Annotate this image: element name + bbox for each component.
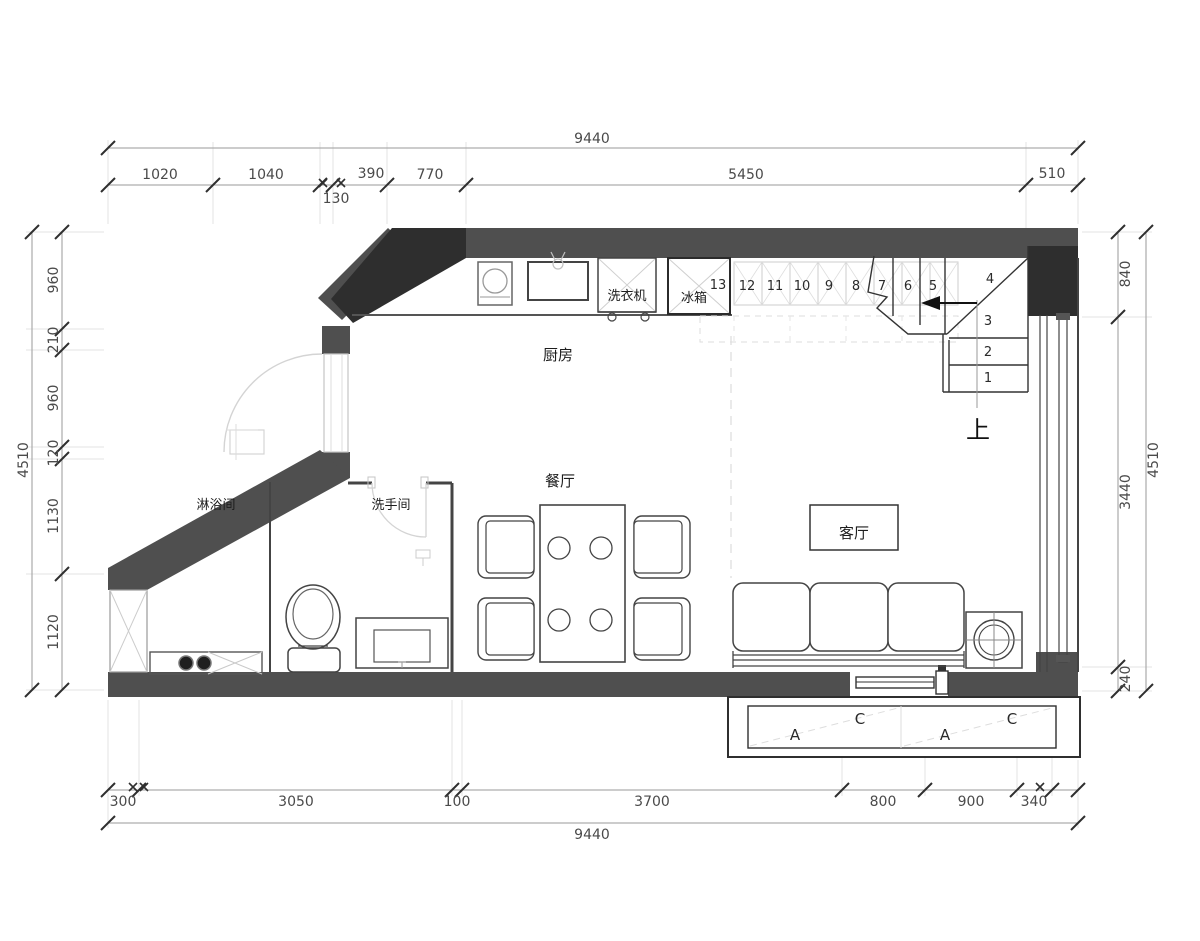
step-number: 6 [904,279,912,294]
dim-label: 900 [958,794,985,810]
chair [478,516,534,578]
pillar [936,671,948,694]
dim-label: 9440 [574,827,610,843]
dim-label: 510 [1039,166,1066,182]
dining-table [540,505,625,662]
step-number: 4 [986,272,994,287]
dim-label: 9440 [574,131,610,147]
room-label-dining: 餐厅 [545,472,575,490]
chair [634,516,690,578]
step-number: 13 [710,278,727,293]
entry-fixture [230,430,264,454]
toilet [286,585,340,672]
dim-top: 9440 1020 1040 130 390 770 5450 510 [142,131,1065,207]
sofa-base-lines [733,651,964,668]
chair [478,598,534,660]
room-label-shower: 淋浴间 [196,498,235,513]
dim-right: 840 3440 240 4510 [1118,261,1162,693]
appliance-label-washer: 洗衣机 [607,288,646,304]
sofa [733,583,964,668]
window-mark: C [1007,710,1017,728]
kitchen-sink [528,252,588,300]
dim-label: 1120 [46,614,62,650]
living-label-box: 客厅 [810,505,898,550]
window-mark: C [855,710,865,728]
balcony-window: A C A C [728,697,1080,757]
room-label-washroom: 洗手间 [371,498,410,513]
vanity [356,618,448,668]
shower-control-icon [179,656,193,670]
shower-room [110,590,262,674]
dim-label: 960 [46,267,62,294]
dim-label: 240 [1118,666,1134,693]
room-label-kitchen: 厨房 [543,346,573,364]
dim-label: 1020 [142,167,178,183]
dim-label: 800 [870,794,897,810]
floor-plan: 9440 1020 1040 130 390 770 5450 510 4510… [0,0,1200,941]
dim-label: 3440 [1118,474,1134,510]
dim-label: 770 [417,167,444,183]
dim-label: 1040 [248,167,284,183]
dim-label: 840 [1118,261,1134,288]
room-label-living: 客厅 [839,524,869,542]
step-number: 5 [929,279,937,294]
faucet-icon [553,259,563,269]
stair-up-label: 上 [966,416,990,444]
cooktop [478,262,512,305]
appliance-label-fridge: 冰箱 [681,290,707,306]
dim-label: 130 [323,191,350,207]
dim-left: 4510 960 210 960 120 1130 1120 [16,267,62,650]
entry-door [224,354,348,460]
window-mark: A [940,726,951,744]
washroom-faucet-icon [416,550,430,566]
side-table [966,612,1022,668]
stairs [868,246,1028,408]
step-number: 2 [984,345,992,360]
dim-label: 390 [358,166,385,182]
dim-label: 960 [46,385,62,412]
dim-label: 5450 [728,167,764,183]
stair-step-numbers: 13 12 11 10 9 8 7 6 5 4 3 2 1 上 [710,272,994,444]
chair [634,598,690,660]
step-number: 1 [984,371,992,386]
step-number: 9 [825,279,833,294]
dim-label: 340 [1021,794,1048,810]
step-number: 11 [767,279,784,294]
shower-control-icon [197,656,211,670]
dim-label: 3050 [278,794,314,810]
dim-label: 4510 [16,442,32,478]
step-number: 12 [739,279,756,294]
stair-break-line [868,256,947,334]
dim-bottom: 300 3050 100 3700 800 900 340 9440 [110,794,1048,843]
dim-label: 120 [46,440,62,467]
step-number: 8 [852,279,860,294]
dim-label: 210 [46,327,62,354]
dim-label: 4510 [1146,442,1162,478]
dim-label: 3700 [634,794,670,810]
dim-label: 1130 [46,498,62,534]
window-mark: A [790,726,801,744]
right-window [1040,258,1078,672]
step-number: 10 [794,279,811,294]
dim-label: 100 [444,794,471,810]
step-number: 7 [878,279,886,294]
dim-label: 300 [110,794,137,810]
floor-plan-svg: 9440 1020 1040 130 390 770 5450 510 4510… [0,0,1200,941]
step-number: 3 [984,314,992,329]
